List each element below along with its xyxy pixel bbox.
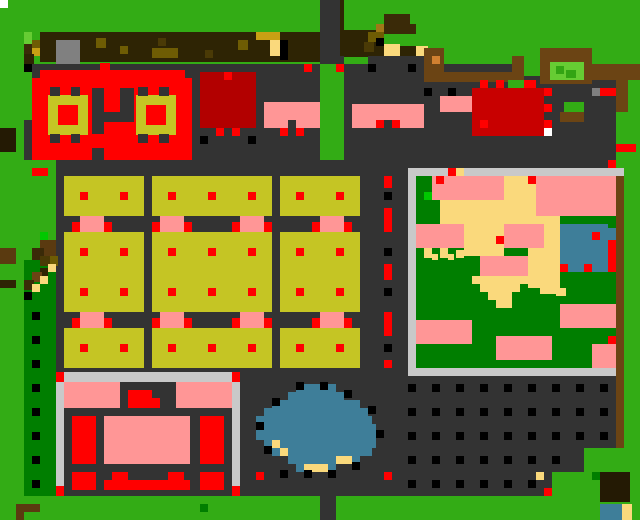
- pixel-art-map: [0, 0, 640, 520]
- campus-map-canvas[interactable]: [0, 0, 640, 520]
